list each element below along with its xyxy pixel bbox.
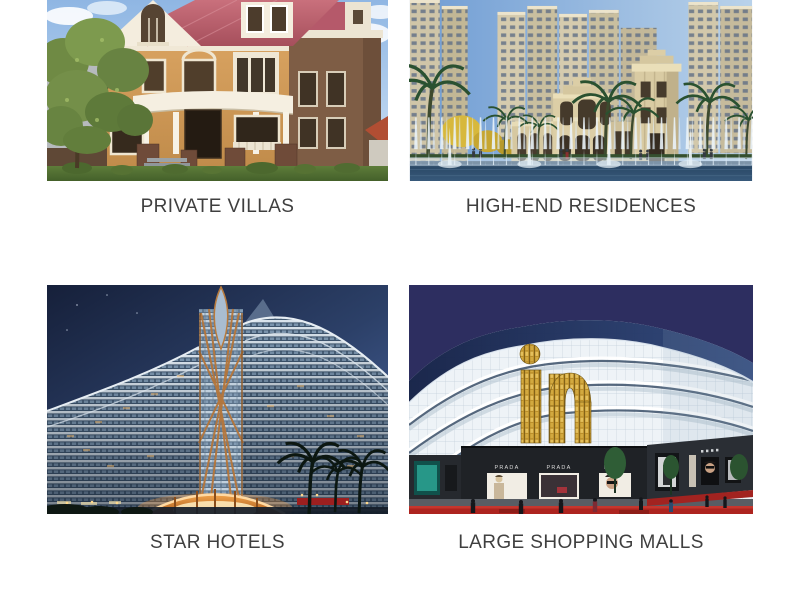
store-sign-prada-2: PRADA — [547, 465, 572, 471]
high-end-residences-image — [409, 0, 753, 181]
caption-large-shopping-malls: LARGE SHOPPING MALLS — [409, 530, 753, 556]
private-villas-image — [47, 0, 388, 181]
large-shopping-malls-image: in — [409, 285, 753, 514]
card-high-end-residences: HIGH-END RESIDENCES — [409, 0, 753, 220]
caption-private-villas: PRIVATE VILLAS — [47, 194, 388, 220]
card-private-villas: PRIVATE VILLAS — [47, 0, 388, 220]
page: PRIVATE VILLAS — [0, 0, 800, 598]
star-hotels-illustration — [47, 285, 388, 514]
card-large-shopping-malls: in — [409, 285, 753, 556]
star-hotels-image — [47, 285, 388, 514]
caption-high-end-residences: HIGH-END RESIDENCES — [409, 194, 753, 220]
caption-star-hotels: STAR HOTELS — [47, 530, 388, 556]
residences-fountains — [410, 117, 752, 168]
hotel-center-tower — [199, 287, 243, 514]
high-end-residences-illustration — [409, 0, 753, 181]
large-shopping-malls-illustration: in — [409, 285, 753, 514]
store-sign-prada-1: PRADA — [495, 465, 520, 471]
private-villas-illustration — [47, 0, 388, 181]
card-star-hotels: STAR HOTELS — [47, 285, 388, 556]
